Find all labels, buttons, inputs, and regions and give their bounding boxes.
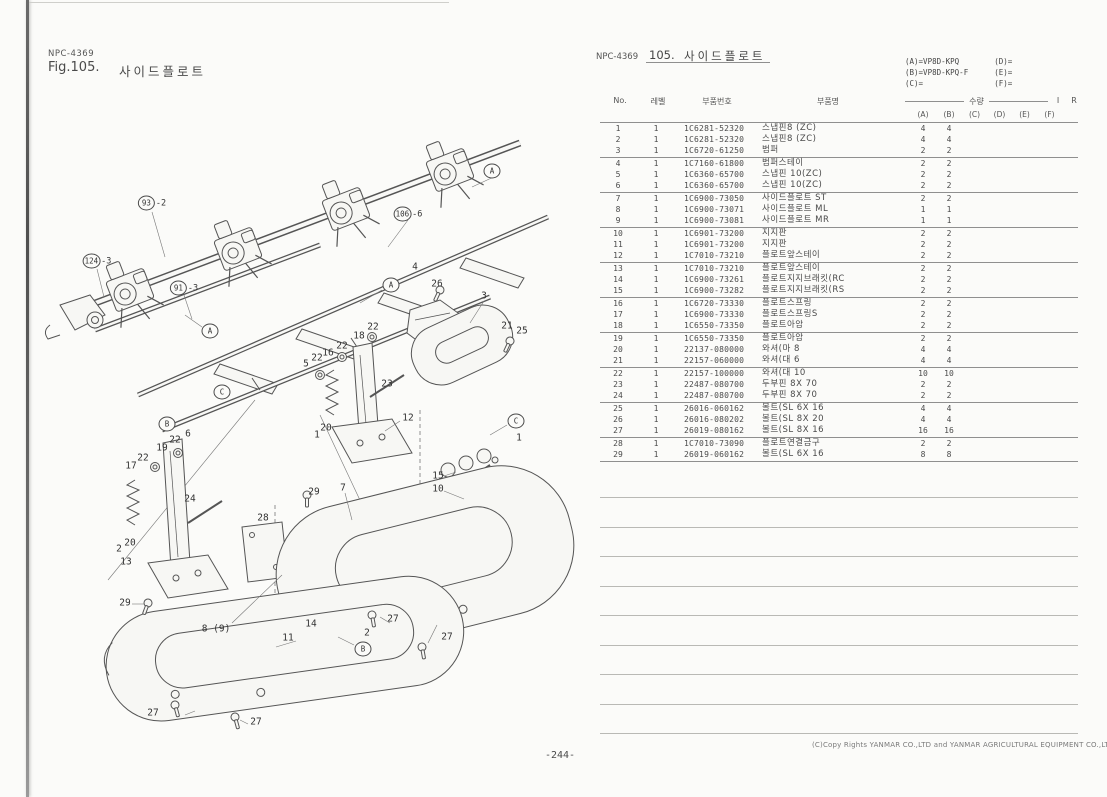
model-spec-item: (B)=VP8D-KPQ-F xyxy=(905,67,968,78)
copyright-text: (C)Copy Rights YANMAR CO.,LTD and YANMAR… xyxy=(812,741,1107,749)
table-row: 29126019-060162볼트(SL 6X 1688 xyxy=(600,449,1078,460)
washer xyxy=(316,371,325,380)
diagram-ref-callout: 124-3 xyxy=(83,254,112,269)
diagram-ref-callout: A xyxy=(484,164,501,179)
diagram-ref-callout: C xyxy=(508,414,525,429)
parts-rows: 111C6281-52320스냅핀8 (ZC)44211C6281-52320스… xyxy=(600,122,1078,462)
list-figure-number: 105. xyxy=(649,48,675,62)
col-header-i: I xyxy=(1057,96,1059,105)
diagram-number-callout: 27 xyxy=(250,717,261,728)
table-row: 511C6360-65700스냅핀 10(ZC)22 xyxy=(600,169,1078,180)
exploded-diagram xyxy=(20,75,580,775)
qty-header-rule: 수량 xyxy=(905,96,1048,107)
table-row: 1811C6550-73350플로트아암22 xyxy=(600,320,1078,331)
model-spec-col-left: (A)=VP8D-KPQ(B)=VP8D-KPQ-F(C)= xyxy=(905,56,968,89)
diagram-number-callout: 27 xyxy=(387,614,398,625)
empty-list-rule xyxy=(600,615,1078,616)
table-row: 111C6281-52320스냅핀8 (ZC)44 xyxy=(600,123,1078,134)
table-row: 1211C7010-73210플로트앞스테이22 xyxy=(600,250,1078,261)
table-row: 2811C7010-73090플로트연결금구22 xyxy=(600,438,1078,449)
figure-number: Fig.105. xyxy=(48,60,99,75)
qty-subcolumn-header: (A) xyxy=(918,110,929,119)
diagram-number-callout: 22 xyxy=(367,322,378,333)
qty-subcolumn-header: (E) xyxy=(1019,110,1030,119)
table-row: 23122487-080700두부핀 8X 7022 xyxy=(600,379,1078,390)
diagram-number-callout: 15 xyxy=(432,471,443,482)
diagram-number-callout: 5 xyxy=(303,359,309,370)
diagram-number-callout: 6 xyxy=(185,429,191,440)
qty-subcolumn-header: (F) xyxy=(1044,110,1054,119)
list-title-underline xyxy=(646,62,770,63)
empty-list-rule xyxy=(600,645,1078,646)
table-row: 1511C6900-73282플로트지지브래킷(RS22 xyxy=(600,285,1078,296)
empty-list-rule xyxy=(600,497,1078,498)
diagram-number-callout: 22 xyxy=(311,353,322,364)
table-row: 1011C6901-73200지지판22 xyxy=(600,228,1078,239)
diagram-number-callout: 22 xyxy=(169,435,180,446)
col-header-part-name: 부품명 xyxy=(817,96,839,107)
washer xyxy=(368,333,377,342)
table-row: 26126016-080202볼트(SL 8X 2044 xyxy=(600,414,1078,425)
table-row: 911C6900-73081사이드플로트 MR11 xyxy=(600,215,1078,226)
qty-subcolumn-header: (D) xyxy=(994,110,1006,119)
diagram-number-callout: 8 (9) xyxy=(202,624,231,635)
table-row: 1111C6901-73200지지판22 xyxy=(600,239,1078,250)
empty-list-rule xyxy=(600,527,1078,528)
model-spec-col-right: (D)=(E)=(F)= xyxy=(994,56,1012,89)
diagram-number-callout: 25 xyxy=(516,326,527,337)
table-row: 24122487-080700두부핀 8X 7022 xyxy=(600,390,1078,401)
diagram-number-callout: 3 xyxy=(481,291,487,302)
col-header-no: No. xyxy=(613,96,626,105)
diagram-number-callout: 24 xyxy=(184,494,195,505)
table-row: 1311C7010-73210플로트앞스테이22 xyxy=(600,263,1078,274)
float-left-shape xyxy=(98,569,470,728)
diagram-ref-callout: A xyxy=(202,324,219,339)
diagram-number-callout: 14 xyxy=(305,619,316,630)
table-row: 211C6281-52320스냅핀8 (ZC)44 xyxy=(600,134,1078,145)
diagram-number-callout: 16 xyxy=(322,348,333,359)
diagram-number-callout: 21 xyxy=(501,321,512,332)
diagram-number-callout: 1 xyxy=(516,433,522,444)
diagram-number-callout: 26 xyxy=(431,279,442,290)
empty-list-rule xyxy=(600,704,1078,705)
diagram-ref-callout: 91-3 xyxy=(170,281,198,296)
diagram-number-callout: 23 xyxy=(381,379,392,390)
diagram-ref-callout: 106-6 xyxy=(394,207,423,222)
qty-subcolumn-header: (B) xyxy=(944,110,955,119)
parts-table-header: No. 레벨 부품번호 부품명 수량 I R (A)(B)(C)(D)(E)(F… xyxy=(600,94,1078,123)
diagram-number-callout: 27 xyxy=(147,708,158,719)
table-row: 22122157-100000와셔(대 101010 xyxy=(600,368,1078,379)
group-separator xyxy=(600,461,1078,462)
diagram-number-callout: 29 xyxy=(308,487,319,498)
diagram-number-callout: 28 xyxy=(257,513,268,524)
table-row: 1411C6900-73261플로트지지브래킷(RC22 xyxy=(600,274,1078,285)
diagram-ref-callout: C xyxy=(214,385,231,400)
diagram-number-callout: 11 xyxy=(282,633,293,644)
model-spec-item: (C)= xyxy=(905,78,968,89)
col-header-part-no: 부품번호 xyxy=(702,96,731,107)
front-stay-left xyxy=(148,555,228,598)
model-spec-item: (F)= xyxy=(994,78,1012,89)
diagram-number-callout: 7 xyxy=(340,483,346,494)
diagram-number-callout: 20 xyxy=(320,423,331,434)
table-row: 1911C6550-73350플로트아암22 xyxy=(600,333,1078,344)
diagram-ref-callout: B xyxy=(159,417,176,432)
table-row: 1611C6720-73330플로트스프링22 xyxy=(600,298,1078,309)
model-spec-item: (A)=VP8D-KPQ xyxy=(905,56,968,67)
diagram-number-callout: 12 xyxy=(402,413,413,424)
table-row: 711C6900-73050사이드플로트 ST22 xyxy=(600,193,1078,204)
front-stay-right xyxy=(332,419,412,463)
model-spec-item: (E)= xyxy=(994,67,1012,78)
table-row: 611C6360-65700스냅핀 10(ZC)22 xyxy=(600,180,1078,191)
diagram-number-callout: 20 xyxy=(124,538,135,549)
diagram-number-callout: 2 xyxy=(364,628,370,639)
bolt xyxy=(230,712,242,730)
col-header-qty: 수량 xyxy=(969,96,984,107)
table-row: 311C6720-61250범퍼22 xyxy=(600,145,1078,156)
diagram-number-callout: 4 xyxy=(412,262,418,273)
diagram-ref-callout: A xyxy=(383,278,400,293)
table-row: 20122137-080000와셔(마 844 xyxy=(600,344,1078,355)
diagram-number-callout: 2 xyxy=(116,544,122,555)
diagram-number-callout: 29 xyxy=(119,598,130,609)
float-spring-left xyxy=(127,480,139,525)
table-row: 27126019-080162볼트(SL 8X 161616 xyxy=(600,425,1078,436)
empty-list-rule xyxy=(600,556,1078,557)
qty-subcolumn-header: (C) xyxy=(969,110,980,119)
table-row: 411C7160-61800범퍼스테이22 xyxy=(600,158,1078,169)
empty-list-rule xyxy=(600,733,1078,734)
diagram-number-callout: 27 xyxy=(441,632,452,643)
left-doc-code: NPC-4369 xyxy=(48,49,94,59)
washer xyxy=(338,353,347,362)
model-spec-block: (A)=VP8D-KPQ(B)=VP8D-KPQ-F(C)= (D)=(E)=(… xyxy=(905,56,1012,89)
table-row: 1711C6900-73330플로트스프링S22 xyxy=(600,309,1078,320)
table-row: 25126016-060162볼트(SL 6X 1644 xyxy=(600,403,1078,414)
washer xyxy=(151,463,160,472)
empty-list-rule xyxy=(600,674,1078,675)
diagram-ref-callout: 93-2 xyxy=(138,196,166,211)
diagram-number-callout: 1 xyxy=(314,430,320,441)
float-spring-right xyxy=(326,370,338,415)
diagram-number-callout: 19 xyxy=(156,443,167,454)
diagram-number-callout: 22 xyxy=(336,341,347,352)
diagram-number-callout: 13 xyxy=(120,557,131,568)
diagram-ref-callout: B xyxy=(355,642,372,657)
diagram-number-callout: 22 xyxy=(137,453,148,464)
catalog-page: NPC-4369 Fig.105. 사이드플로트 NPC-4369 105. 사… xyxy=(0,0,1107,797)
col-header-level: 레벨 xyxy=(651,96,666,107)
empty-list-rule xyxy=(600,586,1078,587)
col-header-r: R xyxy=(1071,96,1077,105)
table-row: 21122157-060000와셔(대 644 xyxy=(600,355,1078,366)
scan-top-edge xyxy=(29,2,449,3)
diagram-number-callout: 18 xyxy=(353,331,364,342)
model-spec-item: (D)= xyxy=(994,56,1012,67)
washer xyxy=(174,449,183,458)
table-row: 811C6900-73071사이드플로트 ML11 xyxy=(600,204,1078,215)
diagram-number-callout: 10 xyxy=(432,484,443,495)
diagram-number-callout: 17 xyxy=(125,461,136,472)
right-doc-code: NPC-4369 xyxy=(596,52,638,62)
